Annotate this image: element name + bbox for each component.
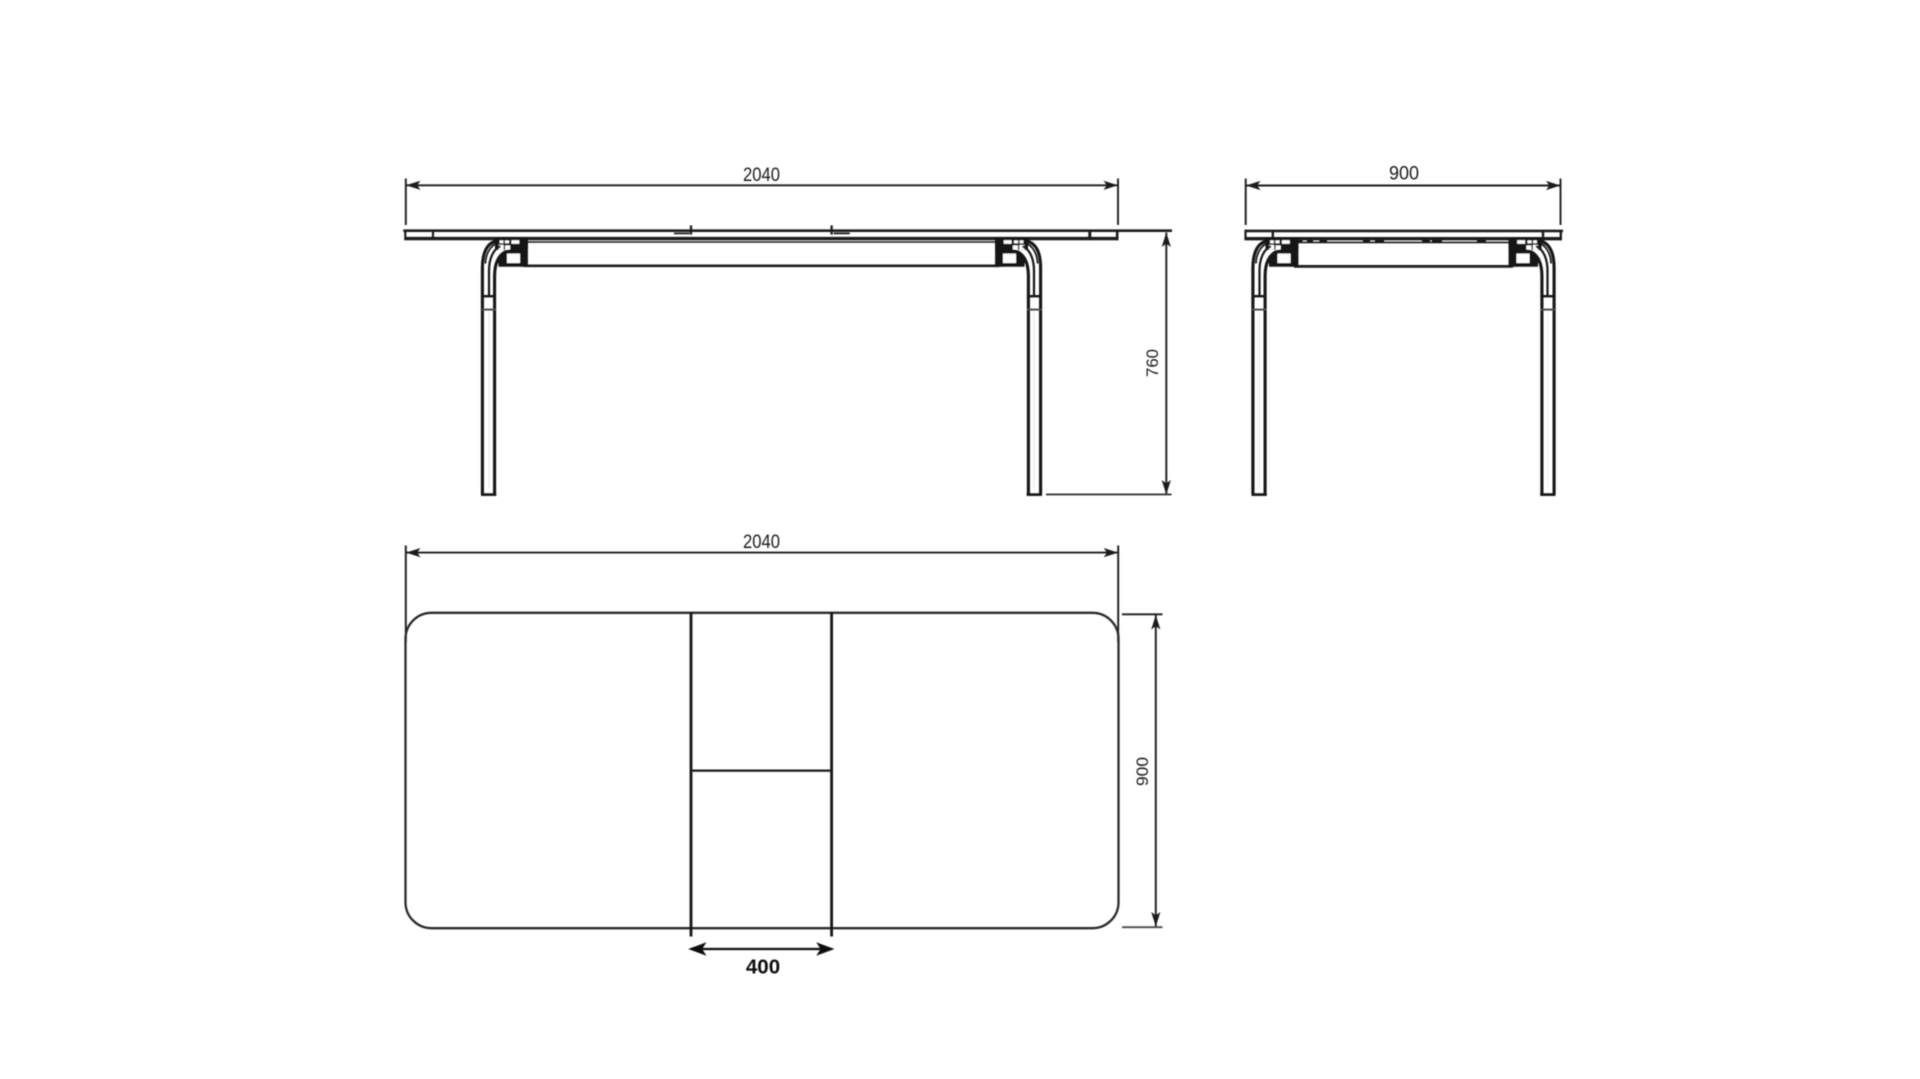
svg-text:900: 900: [1389, 163, 1419, 185]
svg-text:760: 760: [1144, 349, 1162, 377]
svg-text:2040: 2040: [743, 164, 780, 186]
svg-text:400: 400: [746, 956, 780, 979]
svg-text:900: 900: [1134, 757, 1152, 786]
svg-text:2040: 2040: [743, 531, 780, 553]
